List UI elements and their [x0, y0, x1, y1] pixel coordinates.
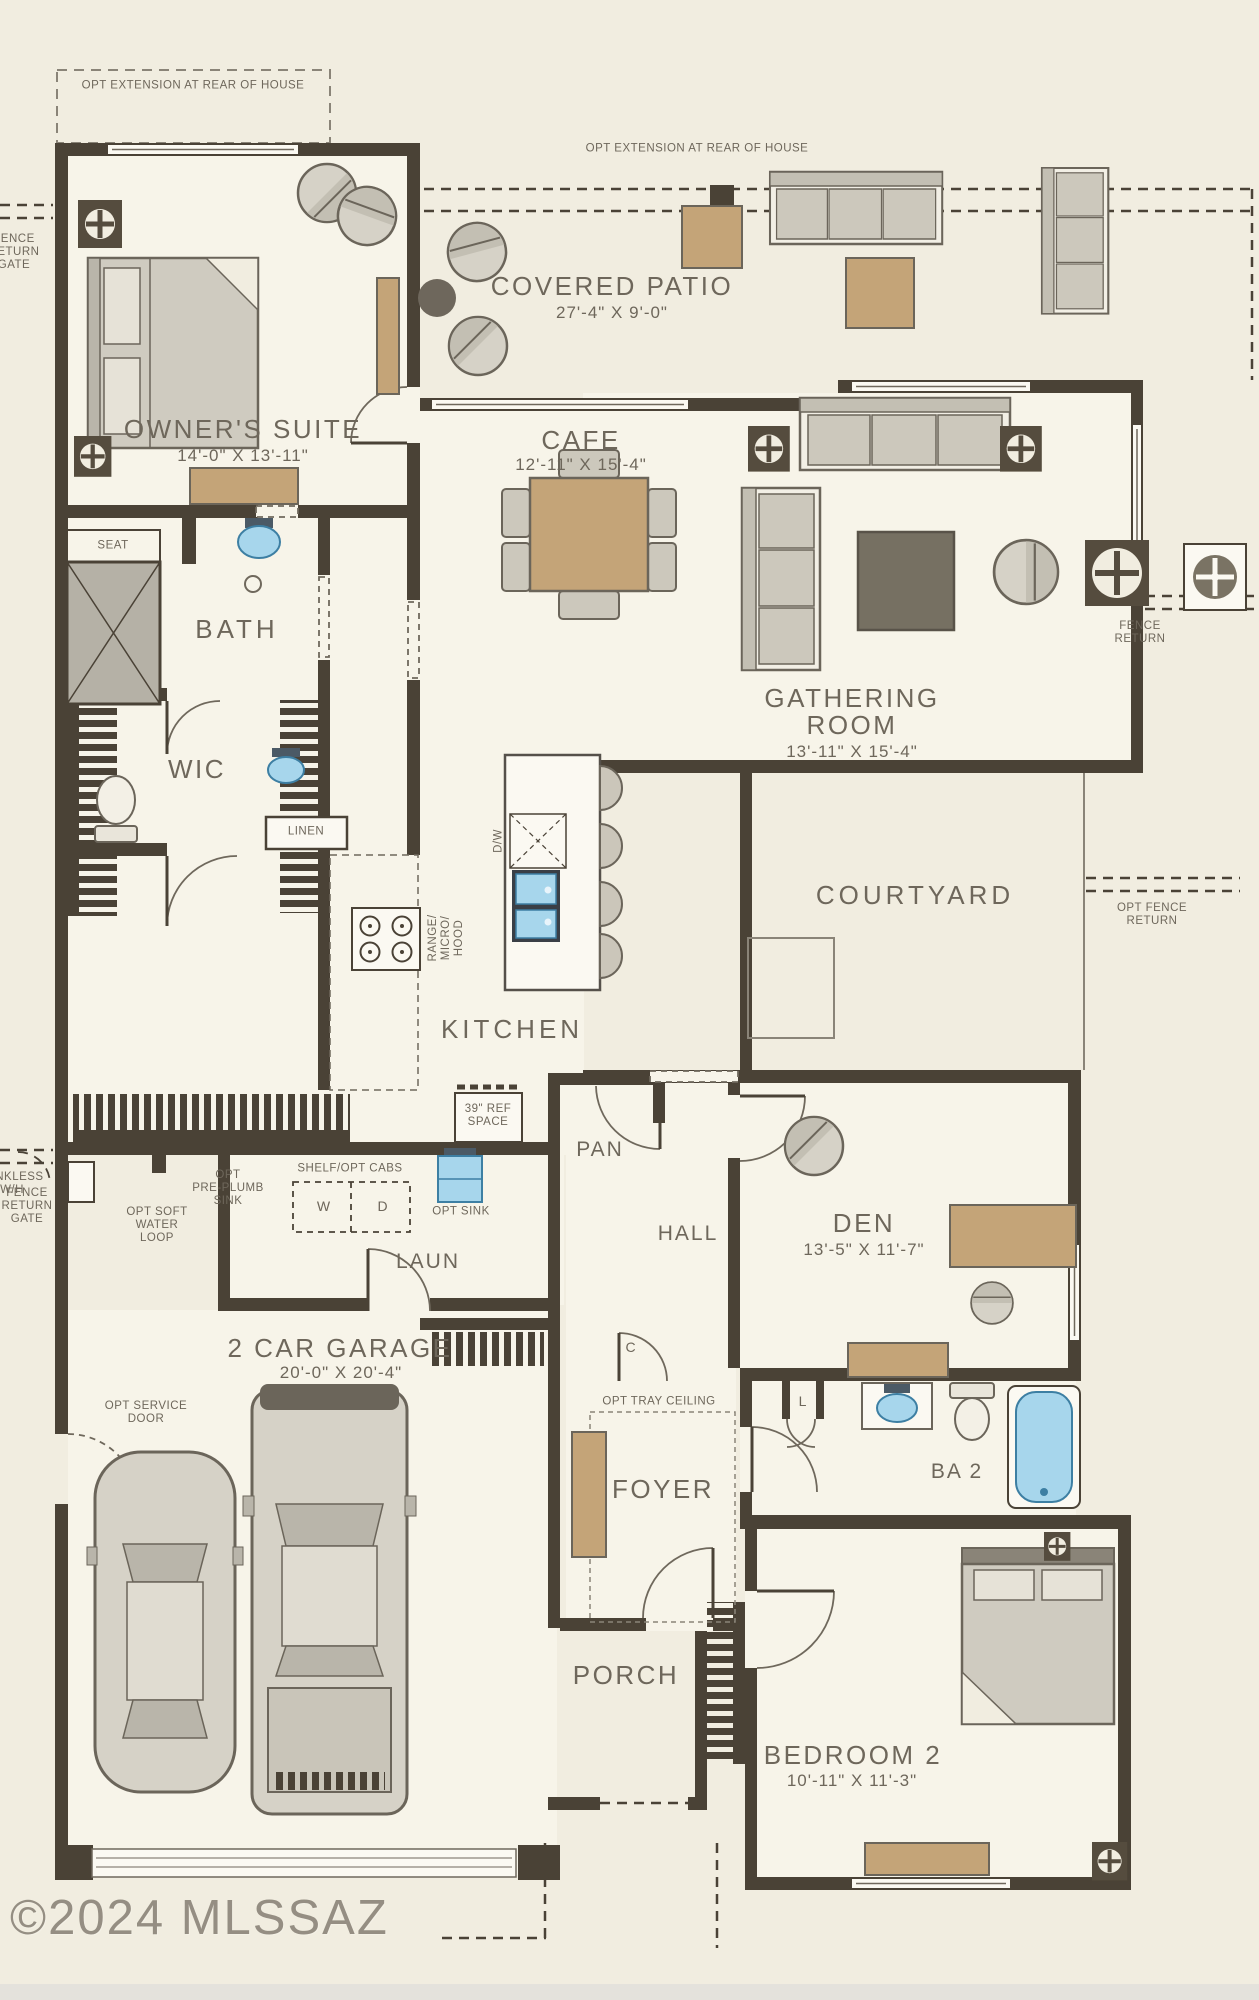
ceiling-fan-icon: [1092, 1842, 1127, 1880]
patio-side-table: [846, 258, 914, 328]
ceiling-fan-icon: [1000, 426, 1042, 472]
bath-sink: [268, 748, 304, 783]
refrigerator-space: [455, 1087, 522, 1142]
opt-sink-icon: [438, 1148, 482, 1202]
shower: [67, 530, 160, 704]
ba2-tub: [1008, 1386, 1080, 1508]
bedroom2-bed: [962, 1548, 1114, 1724]
coffee-table: [858, 532, 954, 630]
patio-side-table: [682, 206, 742, 268]
tankless-water-heater: [68, 1162, 94, 1202]
owner-dresser: [190, 468, 298, 504]
den-chair: [971, 1282, 1013, 1324]
ba2-vanity: [862, 1383, 932, 1429]
bottom-strip: [0, 1984, 1259, 2000]
ceiling-fan-icon: [74, 436, 111, 477]
kitchen-island: [505, 755, 600, 990]
patio-sofa: [1042, 168, 1108, 314]
swivel-chair: [994, 540, 1058, 604]
linen-closet: [266, 817, 347, 849]
ceiling-fan-icon: [1044, 1532, 1070, 1561]
toilet: [95, 776, 137, 842]
kitchen-counter: [330, 855, 418, 1090]
patio-table: [418, 279, 456, 317]
owner-bed: [88, 258, 258, 448]
patio-bench: [377, 278, 399, 394]
floor-plan: OPT EXTENSION AT REAR OF HOUSE OPT EXTEN…: [0, 0, 1259, 2000]
car-truck: [243, 1384, 416, 1814]
den-console: [848, 1343, 948, 1377]
pre-plumb-valve: [152, 1155, 166, 1173]
patio-sofa: [770, 172, 942, 244]
foyer-console: [572, 1432, 606, 1557]
gathering-sofa: [800, 398, 1010, 470]
car-sedan: [87, 1452, 243, 1792]
floor-plan-drawing: [0, 0, 1259, 2000]
bedroom2-dresser: [865, 1843, 989, 1875]
exterior-fan-unit: [1184, 544, 1246, 610]
ceiling-fan-icon: [1085, 540, 1149, 606]
gathering-sofa: [742, 488, 820, 670]
ceiling-fan-icon: [78, 200, 122, 248]
range-icon: [352, 908, 420, 970]
den-desk: [950, 1205, 1076, 1267]
ceiling-fan-icon: [748, 426, 790, 472]
